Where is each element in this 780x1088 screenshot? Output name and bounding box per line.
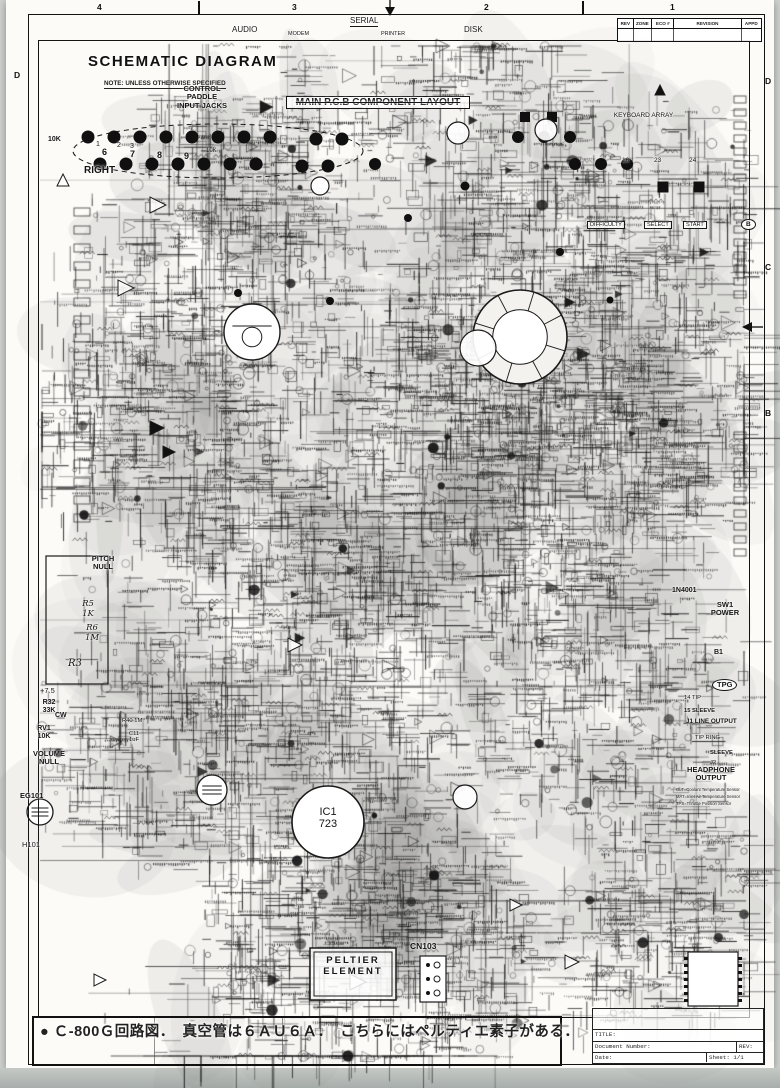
revision-header-rev: REV [618, 19, 634, 28]
rev-cell: REV: [736, 1042, 763, 1052]
zone-tick [198, 1, 200, 14]
zone-4: 4 [97, 2, 102, 12]
revision-empty-cell [652, 29, 674, 41]
zone-2: 2 [484, 2, 489, 12]
zone-tick [582, 1, 584, 14]
revision-empty-cell [618, 29, 634, 41]
zone-1: 1 [670, 2, 675, 12]
document-number-label: Document Number: [595, 1043, 651, 1050]
page-title: SCHEMATIC DIAGRAM [88, 53, 277, 70]
title-block-upper-box [592, 1008, 764, 1030]
title-block-docnum-row: Document Number: REV: [593, 1042, 763, 1053]
note-text: NOTE: UNLESS OTHERWISE SPECIFIED [104, 80, 226, 89]
title-block-date-row: Date: Sheet: 1/1 [593, 1053, 763, 1062]
scanned-schematic-page: 4321DDCB SCHEMATIC DIAGRAM NOTE: UNLESS … [0, 0, 780, 1088]
date-label: Date: [595, 1054, 612, 1061]
rev-label: REV: [739, 1043, 753, 1050]
title-block: TITLE: Document Number: REV: Date: Sheet… [592, 1029, 764, 1064]
revision-table-empty-row [618, 29, 761, 41]
title-label: TITLE: [595, 1031, 616, 1038]
schematic-field-border [38, 40, 750, 1018]
revision-empty-cell [674, 29, 741, 41]
sheet-label: Sheet: 1/1 [709, 1054, 744, 1061]
title-block-title-row: TITLE: [593, 1030, 763, 1042]
revision-header-revision: REVISION [674, 19, 741, 28]
zone-B: B [765, 408, 771, 418]
sheet-cell: Sheet: 1/1 [706, 1053, 763, 1062]
revision-header-appd: APPD [742, 19, 761, 28]
zone-D: D [765, 76, 771, 86]
zone-3: 3 [292, 2, 297, 12]
zone-C: C [765, 262, 771, 272]
revision-empty-cell [634, 29, 653, 41]
revision-table-header: REVZONEECO #REVISIONAPPD [618, 19, 761, 29]
revision-table: REVZONEECO #REVISIONAPPD [617, 18, 762, 42]
revision-empty-cell [742, 29, 761, 41]
zone-D: D [14, 70, 20, 80]
revision-header-zone: ZONE [634, 19, 653, 28]
caption-text: ● Ｃ-800Ｇ回路図． 真空管は６ＡＵ６Ａ． こちらにはペルティエ素子がある． [40, 1020, 579, 1041]
revision-header-eco: ECO # [652, 19, 674, 28]
